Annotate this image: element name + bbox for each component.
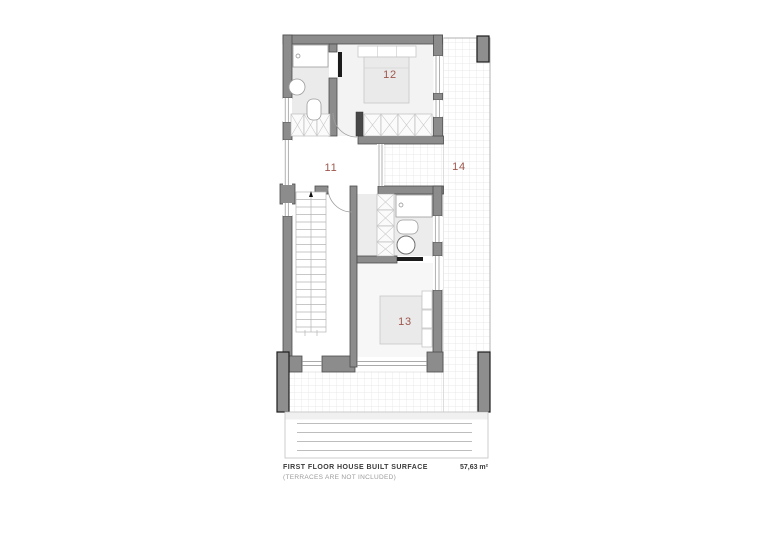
footer-subtitle: (TERRACES ARE NOT INCLUDED) [283, 474, 396, 481]
wardrobe-bedroom12 [364, 114, 432, 136]
toilet-top [307, 99, 321, 120]
sink-bottom [397, 236, 415, 254]
wall-bath12-divider-a [329, 44, 337, 52]
wall-top [283, 35, 443, 44]
room-label-11: 11 [324, 162, 337, 174]
shower-bottom [396, 195, 432, 217]
wall-right-top [434, 35, 443, 56]
wardrobe-bath-bottom [377, 194, 394, 256]
terrace-grid-bottom [283, 372, 444, 412]
room-label-13: 13 [398, 316, 412, 328]
wall-left-mid [283, 122, 292, 140]
floor-plan-canvas: 11 12 13 14 FIRST FLOOR HOUSE BUILT SURF… [0, 0, 770, 535]
pillar-bottom-right [478, 352, 490, 412]
room-label-14: 14 [452, 161, 466, 173]
room-label-12: 12 [383, 69, 397, 81]
terrace-grid-notch [384, 144, 444, 186]
sink-top [289, 79, 305, 95]
bed-13-pillow-1 [422, 291, 432, 309]
window-bottom-right [357, 362, 427, 366]
footer-area-value: 57,63 m² [460, 464, 489, 471]
wall-right-pier1 [434, 93, 443, 100]
footer-caption: FIRST FLOOR HOUSE BUILT SURFACE (TERRACE… [283, 464, 489, 481]
wall-right-lower-pier [433, 242, 442, 256]
footer-title: FIRST FLOOR HOUSE BUILT SURFACE [283, 464, 428, 471]
bed-13-pillow-2 [422, 310, 432, 328]
bed-12-headboard [358, 46, 416, 57]
wall-right-lower-a [433, 186, 442, 216]
window-bottom-left [302, 362, 322, 366]
pillar-top-right [477, 36, 489, 62]
wall-right-lower-b [433, 290, 442, 357]
door-arc-room13 [328, 188, 352, 212]
bed-13-pillow-3 [422, 329, 432, 347]
shower-top [293, 45, 328, 67]
wall-bottom-pier-right [427, 352, 443, 372]
wall-bath13-bottom [357, 256, 397, 263]
door-leaf-bath-top [338, 52, 342, 77]
wall-left-lower [283, 216, 292, 356]
pillar-bottom-left [277, 352, 289, 412]
door-stub-bedroom12 [356, 112, 363, 136]
wall-hall-room13 [350, 186, 357, 367]
staircase [296, 191, 326, 336]
wall-notch-bottom [358, 136, 444, 144]
floor-plan: 11 12 13 14 FIRST FLOOR HOUSE BUILT SURF… [0, 0, 770, 535]
entrance-steps [285, 412, 488, 458]
door-leaf-bath-bottom [397, 257, 423, 261]
wall-left-pier [280, 184, 295, 204]
toilet-bottom [397, 220, 418, 234]
